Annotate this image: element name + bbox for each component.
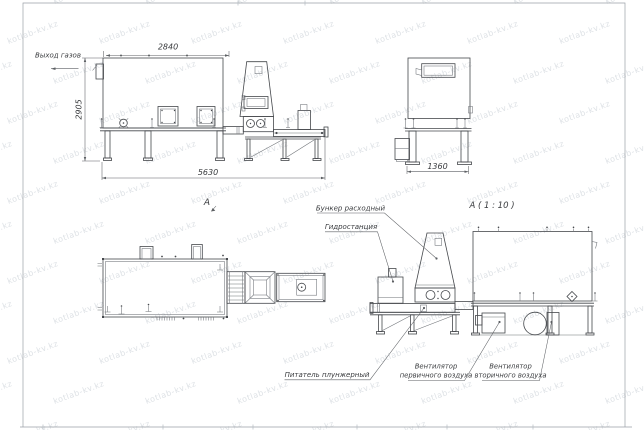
feeder-housing-front xyxy=(243,117,273,132)
view-front-elevation xyxy=(93,58,329,161)
dim-5630-text: 5630 xyxy=(198,168,218,177)
detail-label: А ( 1 : 10 ) xyxy=(468,201,514,211)
conveyor-support-frame xyxy=(245,137,322,161)
dimension-length-total: 5630 xyxy=(102,138,325,180)
plan-conveyor xyxy=(277,273,325,301)
secondary-air-fan xyxy=(524,312,559,335)
feed-hopper-front xyxy=(240,62,274,117)
gas-outlet-label: Выход газов xyxy=(35,52,81,60)
detail-feeder-housing xyxy=(415,288,455,302)
end-top-hatch xyxy=(416,64,455,78)
secondary-fan-label-2: вторичного воздуха xyxy=(474,372,546,380)
secondary-fan-label-1: Вентилятор xyxy=(489,363,532,371)
primary-fan-label-2: первичного воздуха xyxy=(400,372,473,380)
end-side-tab xyxy=(469,107,473,114)
feed-hopper-label: Бункер расходный xyxy=(316,205,386,213)
section-label: А xyxy=(203,198,210,208)
drawing-canvas: 2840 2905 5630 xyxy=(0,0,644,430)
dim-1360-text: 1360 xyxy=(427,162,447,171)
plan-hopper xyxy=(245,272,275,304)
detail-top-bolts xyxy=(478,227,590,232)
hydraulic-station-label: Гидростанция xyxy=(325,223,377,231)
inlet-duct xyxy=(223,127,243,135)
lifting-hook-icon xyxy=(592,242,597,249)
conveyor-front xyxy=(274,105,329,138)
inspection-hatch-2 xyxy=(197,107,215,127)
primary-fan-label-1: Вентилятор xyxy=(415,363,458,371)
dimension-width-end: 1360 xyxy=(407,162,469,174)
dim-2840-text: 2840 xyxy=(158,43,178,52)
plunger-feeder-label: Питатель плунжерный xyxy=(285,371,370,379)
detail-furnace-body xyxy=(473,232,592,302)
plan-feeder-flanges xyxy=(227,272,245,304)
plan-edge-marks xyxy=(98,255,225,320)
dimension-height-left: 2905 xyxy=(75,58,104,161)
detail-feed-hopper xyxy=(415,233,455,288)
inspection-hatch-1 xyxy=(158,107,178,127)
drawing-sheet: kotlab-kv.kzkotlab-kv.kzkotlab-kv.kzkotl… xyxy=(0,0,644,430)
detail-damper-diamond xyxy=(567,292,577,302)
dimension-width-top: 2840 xyxy=(104,43,230,58)
section-mark: А xyxy=(203,198,216,212)
detail-bottom-bolts xyxy=(472,292,598,301)
detail-furnace-frame xyxy=(471,303,594,335)
end-anchor-bolts xyxy=(404,118,468,128)
valve-icon xyxy=(119,118,128,127)
end-fan-box xyxy=(395,139,410,162)
view-end xyxy=(395,58,473,165)
dim-2905-text: 2905 xyxy=(75,99,84,119)
callouts: Выход газов Бункер расходный Гидростанци… xyxy=(35,52,553,381)
furnace-support-frame xyxy=(100,128,226,161)
furnace-body xyxy=(103,58,223,128)
view-detail-a xyxy=(370,227,598,336)
plan-top-stubs xyxy=(140,245,202,260)
plan-louvers xyxy=(157,317,214,321)
end-body xyxy=(408,58,470,119)
sheet-frame xyxy=(20,1,632,430)
gas-outlet-stub xyxy=(93,64,104,79)
detail-hopper-frame xyxy=(370,312,460,334)
view-plan xyxy=(98,245,326,321)
primary-air-fan xyxy=(476,313,506,333)
end-support-frame xyxy=(405,129,472,165)
